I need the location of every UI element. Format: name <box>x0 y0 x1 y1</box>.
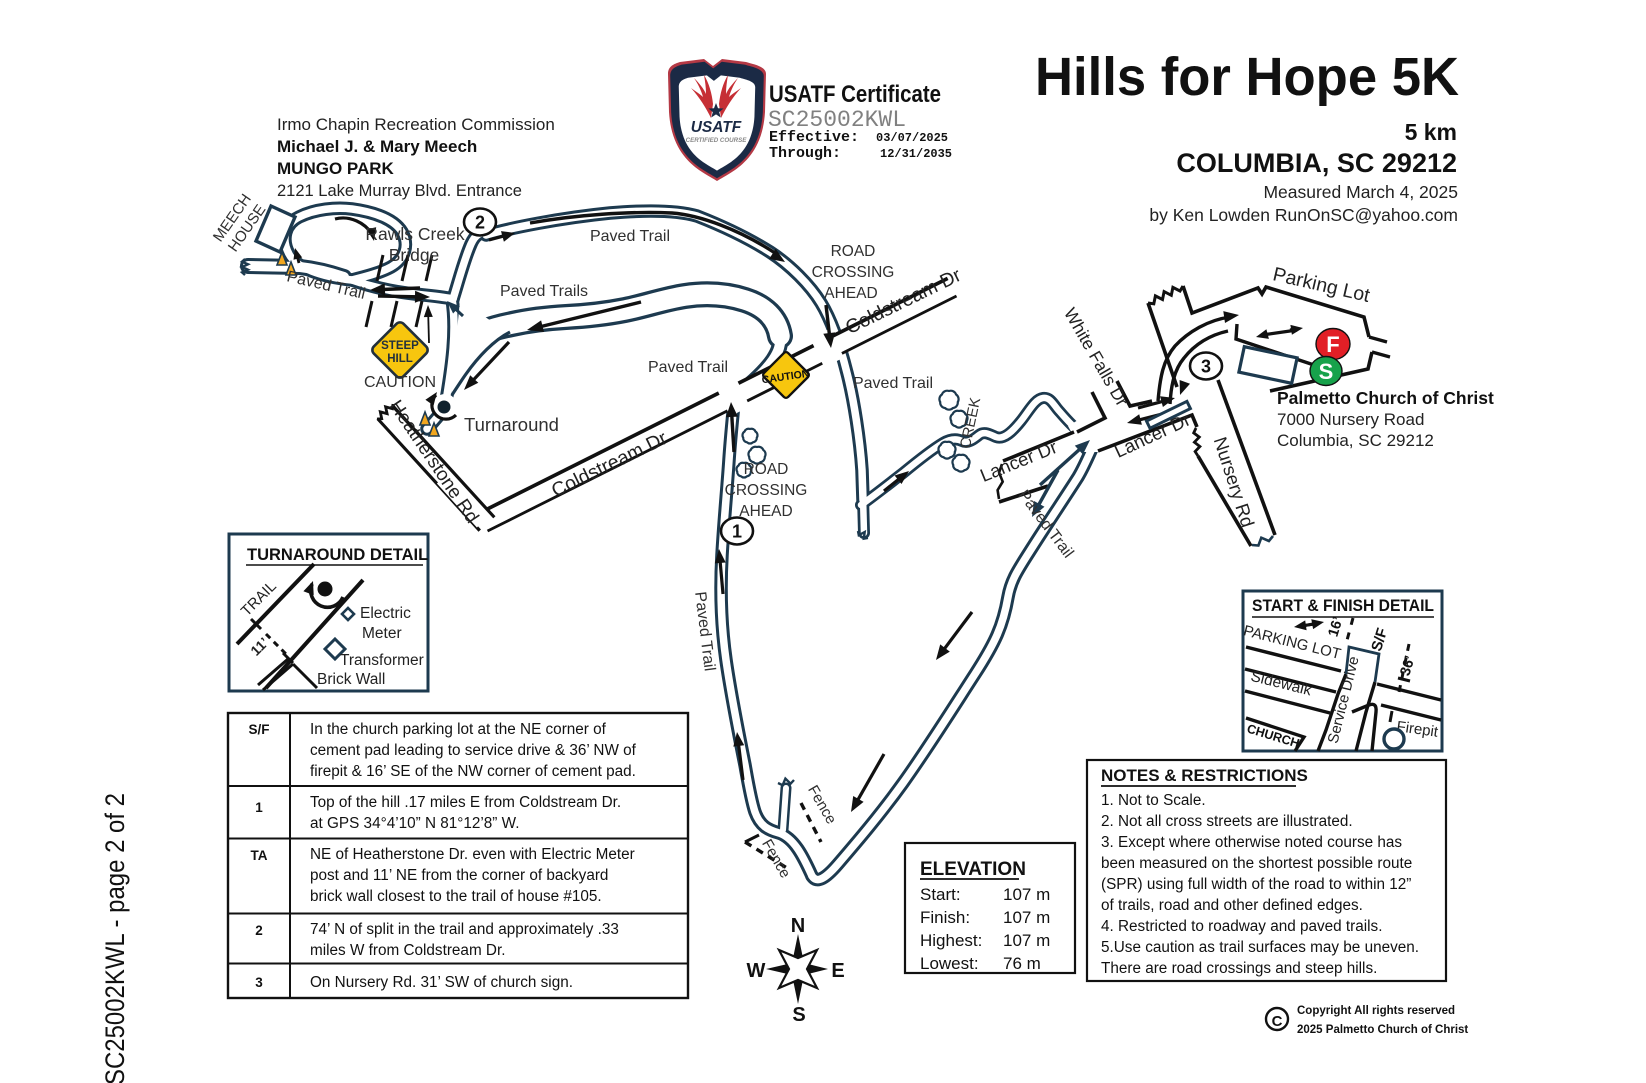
svg-text:03/07/2025: 03/07/2025 <box>876 131 948 145</box>
svg-text:brick wall closest to the trai: brick wall closest to the trail of house… <box>310 888 602 905</box>
svg-text:NE of Heatherstone Dr. even wi: NE of Heatherstone Dr. even with Electri… <box>310 846 635 863</box>
svg-text:S/F: S/F <box>248 722 269 737</box>
svg-text:Copyright All rights reserved: Copyright All rights reserved <box>1297 1005 1455 1017</box>
svg-text:by Ken Lowden RunOnSC@yahoo.co: by Ken Lowden RunOnSC@yahoo.com <box>1149 205 1458 225</box>
svg-text:3. Except where otherwise note: 3. Except where otherwise noted course h… <box>1101 834 1402 851</box>
svg-text:2: 2 <box>255 923 263 938</box>
svg-text:Turnaround: Turnaround <box>464 414 559 435</box>
svg-text:AHEAD: AHEAD <box>824 285 877 302</box>
svg-text:Top of the hill .17 miles E fr: Top of the hill .17 miles E from Coldstr… <box>310 794 621 811</box>
svg-text:Paved Trail: Paved Trail <box>853 375 933 392</box>
svg-text:CERTIFIED COURSE: CERTIFIED COURSE <box>686 137 748 144</box>
svg-text:N: N <box>791 915 805 937</box>
svg-text:post and 11’ NE from the corne: post and 11’ NE from the corner of backy… <box>310 867 608 884</box>
svg-text:USATF: USATF <box>691 119 742 136</box>
svg-text:miles W from Coldstream Dr.: miles W from Coldstream Dr. <box>310 942 505 959</box>
svg-text:ROAD: ROAD <box>831 243 876 260</box>
svg-text:Electric: Electric <box>360 605 411 622</box>
svg-text:There are road crossings and s: There are road crossings and steep hills… <box>1101 960 1377 977</box>
svg-text:Bridge: Bridge <box>389 245 440 265</box>
svg-text:2121 Lake Murray Blvd. Entranc: 2121 Lake Murray Blvd. Entrance <box>277 182 522 200</box>
svg-text:CAUTION: CAUTION <box>364 374 436 391</box>
svg-text:AHEAD: AHEAD <box>739 503 792 520</box>
svg-text:F: F <box>1326 332 1339 357</box>
svg-text:Palmetto Church of Christ: Palmetto Church of Christ <box>1277 388 1494 408</box>
svg-text:S: S <box>792 1004 805 1026</box>
svg-text:at GPS 34°4’10” N 81°12’8” W.: at GPS 34°4’10” N 81°12’8” W. <box>310 815 520 832</box>
svg-text:107 m: 107 m <box>1003 931 1050 950</box>
svg-text:Brick Wall: Brick Wall <box>317 671 385 688</box>
svg-text:Finish:: Finish: <box>920 908 970 927</box>
svg-text:cement pad leading to service: cement pad leading to service drive & 36… <box>310 742 637 759</box>
svg-text:7000 Nursery Road: 7000 Nursery Road <box>1277 410 1424 429</box>
svg-text:START & FINISH DETAIL: START & FINISH DETAIL <box>1252 597 1434 615</box>
svg-text:CROSSING: CROSSING <box>812 264 895 281</box>
svg-text:C: C <box>1272 1013 1283 1030</box>
svg-text:12/31/2035: 12/31/2035 <box>880 147 952 161</box>
svg-text:107 m: 107 m <box>1003 885 1050 904</box>
svg-text:(SPR) using full width of the: (SPR) using full width of the road to wi… <box>1101 876 1411 893</box>
svg-text:76 m: 76 m <box>1003 954 1041 973</box>
svg-text:2. Not all cross streets are i: 2. Not all cross streets are illustrated… <box>1101 813 1353 830</box>
svg-text:107 m: 107 m <box>1003 908 1050 927</box>
svg-text:Lowest:: Lowest: <box>920 954 979 973</box>
svg-text:2: 2 <box>475 213 485 233</box>
svg-text:5.Use caution as trail surface: 5.Use caution as trail surfaces may be u… <box>1101 939 1419 956</box>
svg-text:Paved Trail: Paved Trail <box>648 359 728 376</box>
svg-text:E: E <box>831 960 844 982</box>
svg-text:Through:: Through: <box>769 145 841 162</box>
svg-text:2025 Palmetto Church of Christ: 2025 Palmetto Church of Christ <box>1297 1024 1468 1036</box>
svg-text:3: 3 <box>255 975 263 990</box>
svg-text:ELEVATION: ELEVATION <box>920 859 1026 880</box>
svg-text:Paved Trails: Paved Trails <box>500 283 588 300</box>
svg-text:Columbia, SC 29212: Columbia, SC 29212 <box>1277 431 1434 450</box>
svg-text:On Nursery Rd. 31’ SW of churc: On Nursery Rd. 31’ SW of church sign. <box>310 974 573 991</box>
svg-text:W: W <box>747 960 766 982</box>
svg-text:TURNAROUND DETAIL: TURNAROUND DETAIL <box>247 546 428 564</box>
svg-text:firepit & 16’ SE of the NW cor: firepit & 16’ SE of the NW corner of cem… <box>310 763 636 780</box>
svg-text:HILL: HILL <box>387 353 413 365</box>
svg-text:Measured March 4, 2025: Measured March 4, 2025 <box>1263 182 1458 202</box>
svg-text:STEEP: STEEP <box>381 340 419 352</box>
svg-text:1. Not to Scale.: 1. Not to Scale. <box>1101 792 1206 809</box>
svg-text:Irmo Chapin Recreation Commiss: Irmo Chapin Recreation Commission <box>277 115 555 134</box>
svg-text:74’ N of split in the trail an: 74’ N of split in the trail and approxim… <box>310 921 619 938</box>
svg-text:of trails, road and other defi: of trails, road and other defined edges. <box>1101 897 1363 914</box>
svg-text:NOTES & RESTRICTIONS: NOTES & RESTRICTIONS <box>1101 766 1308 785</box>
svg-text:ROAD: ROAD <box>744 461 789 478</box>
svg-text:1: 1 <box>732 522 742 542</box>
svg-text:Paved Trail: Paved Trail <box>590 228 670 245</box>
svg-text:USATF Certificate: USATF Certificate <box>769 81 941 108</box>
svg-text:Meter: Meter <box>362 625 402 642</box>
svg-text:Rawls Creek: Rawls Creek <box>365 224 464 244</box>
svg-text:Effective:: Effective: <box>769 129 859 146</box>
svg-text:been measured on the shortest: been measured on the shortest possible r… <box>1101 855 1412 872</box>
svg-text:Highest:: Highest: <box>920 931 982 950</box>
svg-text:Hills for Hope 5K: Hills for Hope 5K <box>1035 47 1459 107</box>
svg-text:CROSSING: CROSSING <box>725 482 808 499</box>
svg-text:Start:: Start: <box>920 885 961 904</box>
svg-text:1: 1 <box>255 800 263 815</box>
svg-text:5 km: 5 km <box>1405 119 1457 145</box>
svg-text:SC25002KWL - page 2 of 2: SC25002KWL - page 2 of 2 <box>100 793 130 1083</box>
svg-text:Michael J. & Mary Meech: Michael J. & Mary Meech <box>277 137 477 156</box>
svg-text:COLUMBIA, SC 29212: COLUMBIA, SC 29212 <box>1176 148 1457 178</box>
svg-text:3: 3 <box>1201 357 1211 377</box>
svg-text:MUNGO PARK: MUNGO PARK <box>277 159 395 178</box>
svg-text:TA: TA <box>251 848 268 863</box>
svg-text:4. Restricted to roadway and p: 4. Restricted to roadway and paved trail… <box>1101 918 1382 935</box>
svg-text:Transformer: Transformer <box>340 652 424 669</box>
svg-text:In the church parking lot at t: In the church parking lot at the NE corn… <box>310 721 607 738</box>
svg-text:S: S <box>1319 359 1334 384</box>
